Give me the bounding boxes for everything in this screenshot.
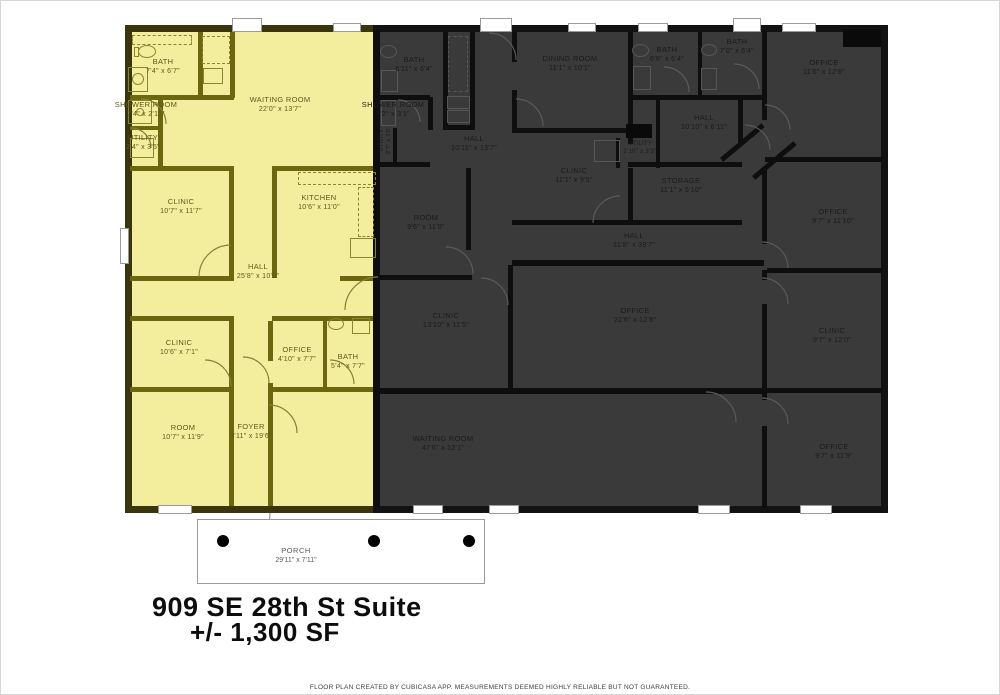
wall [443, 125, 475, 130]
wall [762, 426, 767, 508]
wall [628, 162, 742, 167]
wall [762, 32, 767, 120]
porch-label: PORCH 29'11" x 7'11" [275, 546, 316, 566]
window [782, 23, 816, 32]
room-label: STORAGE11'1" x 5'10" [660, 176, 702, 195]
room-label: WAITING ROOM22'0" x 13'7" [250, 95, 311, 114]
wall [512, 32, 517, 62]
window [568, 23, 596, 32]
sink-icon [633, 66, 651, 90]
porch-column [368, 535, 380, 547]
appliance-icon [447, 110, 470, 123]
room-label: HALL10'11" x 13'7" [451, 134, 497, 153]
room-label: CLINIC9'7" x 12'0" [813, 326, 851, 345]
wall [656, 138, 660, 168]
room-label: OFFICE11'6" x 12'6" [803, 58, 845, 77]
room-label: UTILITY2'4" x 3'5" [126, 133, 160, 152]
window [333, 23, 361, 32]
utility-sink-icon [594, 140, 620, 162]
room-label: CLINIC13'10" x 11'5" [423, 311, 469, 330]
wall [466, 168, 471, 250]
wall [380, 388, 767, 394]
floor-plan-canvas: BATH7'4" x 6'7" SHOWER ROOM7'4" x 2'11" … [0, 0, 1000, 695]
wall [393, 128, 397, 166]
room-label: FOYER3'11" x 19'6" [230, 422, 272, 441]
footer-disclaimer: FLOOR PLAN CREATED BY CUBICASA APP. MEAS… [0, 684, 1000, 691]
wall [340, 276, 373, 281]
room-label: BATH6'8" x 6'4" [650, 45, 684, 64]
wall [323, 321, 327, 389]
room-label: UTILITY2'7" x 3'6" [379, 126, 393, 153]
fixture [203, 68, 223, 84]
wall [656, 97, 660, 142]
window [413, 505, 443, 514]
closet-shelf [202, 36, 230, 64]
toilet-icon [328, 318, 344, 330]
room-label: HALL10'10" x 6'11" [681, 113, 727, 132]
window [698, 505, 730, 514]
room-label: CLINIC10'7" x 11'7" [160, 197, 202, 216]
room-label: ROOM10'7" x 11'9" [162, 423, 204, 442]
toilet-icon [632, 44, 649, 57]
room-label: HALL31'8" x 39'7" [613, 231, 655, 250]
wall [767, 388, 883, 393]
wall [268, 321, 273, 361]
porch-outline [197, 519, 485, 584]
wall [508, 265, 513, 390]
kitchen-counter [358, 187, 374, 237]
room-label: BATH6'11" x 6'4" [395, 55, 433, 74]
kitchen-counter [298, 172, 376, 185]
wall [130, 276, 234, 281]
window [232, 18, 262, 32]
wall [470, 32, 475, 130]
toilet-icon [701, 44, 717, 56]
room-label: BATH7'4" x 6'7" [146, 57, 180, 76]
wall [762, 168, 767, 244]
window [120, 228, 129, 264]
room-label: UTILITY2'10" x 3'3" [623, 141, 656, 157]
utility-block [626, 124, 652, 138]
wall [628, 168, 633, 225]
appliance-icon [447, 96, 470, 109]
room-label: CLINIC11'1" x 9'5" [555, 166, 593, 185]
window [480, 18, 512, 32]
room-label: CLINIC10'6" x 7'1" [160, 338, 198, 357]
suite-area-title: +/- 1,300 SF [190, 617, 340, 648]
room-label: SHOWER ROOM7'4" x 2'11" [115, 100, 177, 119]
wall [229, 171, 234, 278]
wall [428, 97, 433, 130]
window [489, 505, 519, 514]
wall [229, 321, 234, 506]
room-label: BATH5'4" x 7'7" [331, 352, 365, 371]
window [158, 505, 192, 514]
room-label: BATH7'0" x 6'4" [720, 37, 754, 56]
room-label: OFFICE22'6" x 12'8" [614, 306, 656, 325]
room-label: ROOM9'6" x 11'0" [407, 213, 445, 232]
wall [512, 260, 764, 266]
room-label: SHOWER ROOM7'2" x 3'1" [362, 100, 424, 119]
wall [738, 97, 743, 142]
room-label: OFFICE9'7" x 11'9" [815, 442, 853, 461]
room-label: OFFICE4'10" x 7'7" [278, 345, 316, 364]
counter [448, 36, 468, 92]
corner-block [843, 30, 881, 47]
wall [130, 316, 234, 321]
wall [130, 166, 234, 171]
sink-bowl-icon [132, 73, 144, 85]
room-label: HALL25'8" x 10'0" [237, 262, 279, 281]
wall [762, 304, 767, 400]
window [733, 18, 761, 32]
window [638, 23, 668, 32]
room-label: KITCHEN10'6" x 11'0" [298, 193, 340, 212]
counter [132, 35, 192, 45]
wall [512, 90, 517, 133]
wall [272, 166, 373, 171]
wall [512, 128, 633, 133]
wall [230, 32, 235, 98]
kitchen-sink-icon [350, 238, 376, 258]
porch-column [217, 535, 229, 547]
room-label: OFFICE9'7" x 11'10" [812, 207, 854, 226]
room-label: WAITING ROOM47'6" x 12'1" [413, 434, 474, 453]
wall [272, 387, 373, 392]
sink-icon [701, 68, 717, 90]
room-label: DINING ROOM11'1" x 10'1" [543, 54, 598, 73]
wall [380, 275, 472, 280]
wall [767, 268, 883, 273]
wall [130, 126, 160, 130]
wall [380, 162, 430, 167]
porch-column [463, 535, 475, 547]
wall [512, 220, 742, 225]
wall [268, 383, 273, 506]
window [800, 505, 832, 514]
wall [130, 387, 234, 392]
wall [765, 157, 883, 162]
sink-icon [352, 318, 370, 334]
toilet-tank-icon [134, 47, 139, 57]
